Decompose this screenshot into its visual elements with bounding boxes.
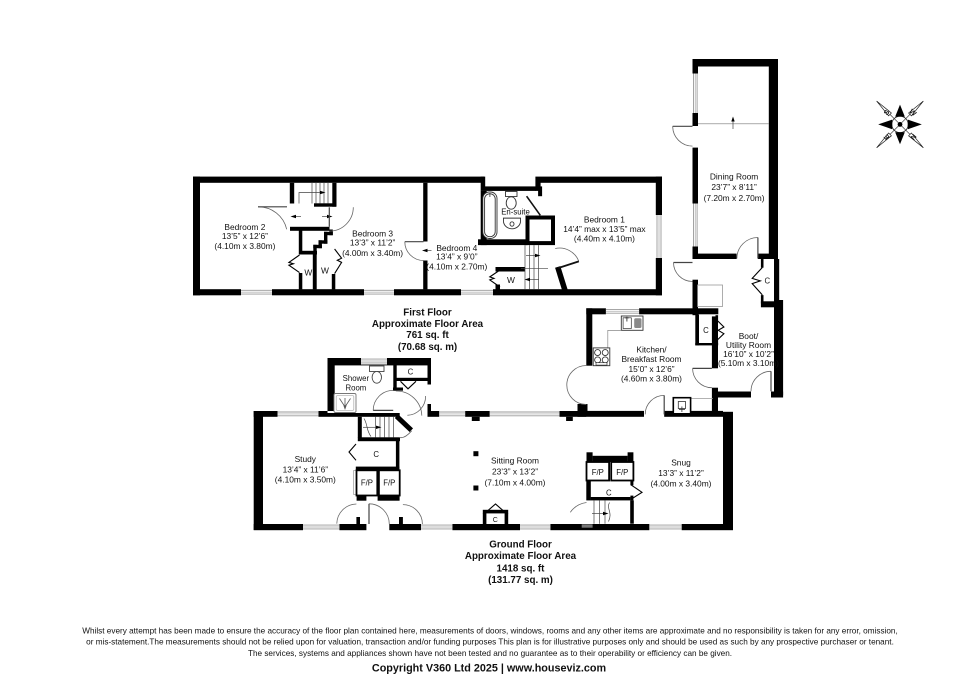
svg-text:F/P: F/P (592, 468, 604, 477)
svg-text:C: C (606, 489, 612, 498)
svg-text:C: C (703, 326, 709, 335)
svg-text:Approximate Floor Area: Approximate Floor Area (465, 551, 577, 562)
svg-text:(4.60m x 3.80m): (4.60m x 3.80m) (621, 374, 682, 384)
svg-text:Breakfast Room: Breakfast Room (621, 354, 681, 364)
svg-text:23’7” x 8’11”: 23’7” x 8’11” (711, 182, 757, 192)
svg-text:15’0” x 12’6”: 15’0” x 12’6” (628, 364, 674, 374)
svg-text:23’3” x 13’2”: 23’3” x 13’2” (492, 466, 538, 476)
svg-text:C: C (493, 517, 498, 524)
svg-text:F/P: F/P (383, 479, 395, 488)
svg-text:W: W (321, 266, 329, 276)
svg-text:Ground Floor: Ground Floor (489, 539, 552, 550)
svg-text:(131.77 sq. m): (131.77 sq. m) (488, 575, 553, 586)
svg-text:W: W (304, 268, 312, 278)
svg-text:C: C (764, 276, 770, 285)
svg-text:C: C (373, 450, 379, 459)
svg-text:Room: Room (345, 384, 366, 393)
svg-text:Approximate Floor Area: Approximate Floor Area (372, 319, 484, 330)
svg-text:Sitting Room: Sitting Room (491, 455, 539, 465)
svg-text:13’3” x 11’2”: 13’3” x 11’2” (658, 468, 704, 478)
svg-text:14’4” max x 13’5” max: 14’4” max x 13’5” max (563, 224, 646, 234)
svg-text:Copyright V360 Ltd 2025 | www.: Copyright V360 Ltd 2025 | www.houseviz.c… (372, 663, 606, 675)
svg-text:E: E (883, 132, 892, 140)
svg-text:(4.00m x 3.40m): (4.00m x 3.40m) (651, 479, 712, 489)
svg-text:Dining Room: Dining Room (710, 171, 758, 181)
svg-text:F/P: F/P (361, 479, 373, 488)
svg-text:1418 sq. ft: 1418 sq. ft (497, 563, 546, 574)
svg-text:13’5” x 12’6”: 13’5” x 12’6” (222, 231, 268, 241)
svg-text:(70.68 sq. m): (70.68 sq. m) (398, 342, 457, 353)
svg-text:W: W (507, 275, 515, 285)
svg-text:Snug: Snug (671, 458, 691, 468)
svg-text:13’4” x 9’0”: 13’4” x 9’0” (436, 252, 478, 262)
svg-text:(4.10m x 2.70m): (4.10m x 2.70m) (426, 261, 487, 271)
svg-text:C: C (408, 368, 414, 377)
svg-text:(4.40m x 4.10m): (4.40m x 4.10m) (574, 234, 635, 244)
svg-text:Whilst every attempt has been: Whilst every attempt has been made to en… (82, 627, 898, 636)
svg-text:Kitchen/: Kitchen/ (636, 344, 667, 354)
svg-text:N: N (909, 132, 918, 140)
svg-text:13’4” x 11’6”: 13’4” x 11’6” (283, 464, 329, 474)
svg-text:Shower: Shower (343, 374, 370, 383)
svg-text:F/P: F/P (616, 468, 628, 477)
svg-text:(5.10m x 3.10m): (5.10m x 3.10m) (718, 358, 779, 368)
svg-text:or mis-statement.The measureme: or mis-statement.The measurements should… (86, 638, 894, 647)
svg-text:13’3” x 11’2”: 13’3” x 11’2” (350, 237, 396, 247)
svg-text:(7.20m x 2.70m): (7.20m x 2.70m) (704, 193, 765, 203)
svg-text:En-suite: En-suite (501, 208, 530, 217)
svg-text:(7.10m x 4.00m): (7.10m x 4.00m) (485, 477, 546, 487)
svg-text:(4.10m x 3.50m): (4.10m x 3.50m) (275, 475, 336, 485)
svg-text:761 sq. ft: 761 sq. ft (406, 330, 449, 341)
svg-text:(4.00m x 3.40m): (4.00m x 3.40m) (342, 248, 403, 258)
svg-text:First Floor: First Floor (403, 307, 452, 318)
svg-text:(4.10m x 3.80m): (4.10m x 3.80m) (214, 241, 275, 251)
svg-text:The services, systems and appl: The services, systems and appliances sho… (248, 649, 732, 658)
svg-text:Study: Study (295, 454, 317, 464)
